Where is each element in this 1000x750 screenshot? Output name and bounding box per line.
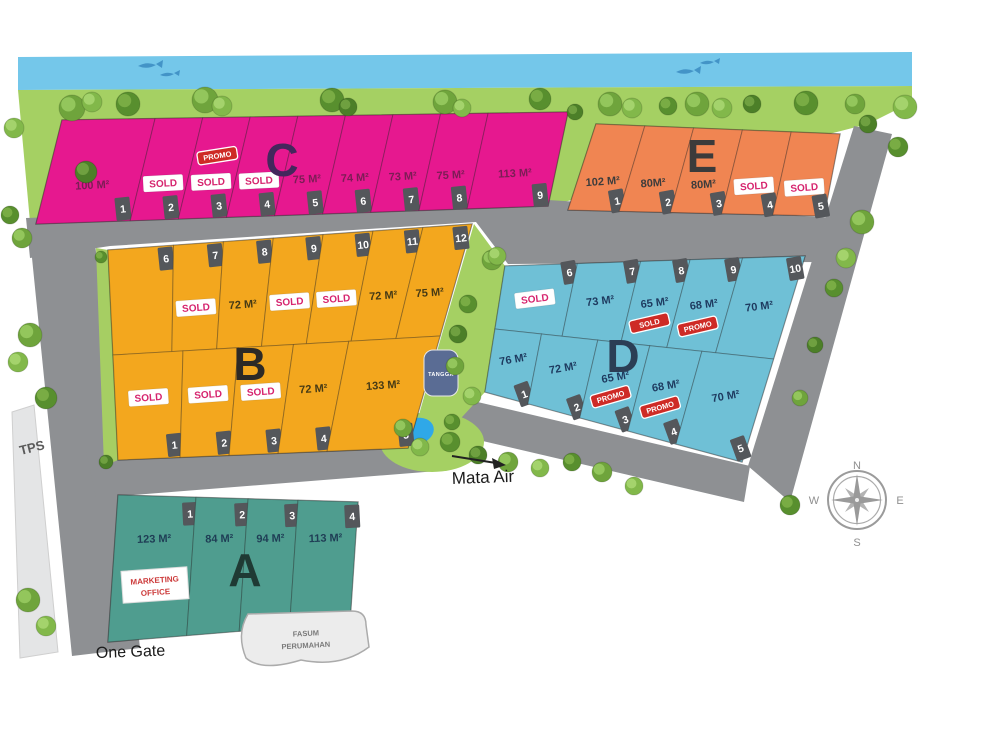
lot-number-tag: 7 <box>403 187 420 211</box>
svg-text:SOLD: SOLD <box>134 392 162 405</box>
tree <box>712 98 732 118</box>
tree <box>888 137 908 157</box>
sold-badge: SOLD <box>188 385 229 404</box>
sold-badge: SOLD <box>733 177 774 196</box>
svg-text:SOLD: SOLD <box>790 182 818 195</box>
svg-text:SOLD: SOLD <box>197 177 225 189</box>
tree <box>859 115 877 133</box>
svg-text:2: 2 <box>239 509 246 521</box>
tree <box>488 247 506 265</box>
sold-badge: SOLD <box>191 173 232 191</box>
tree <box>116 92 140 116</box>
lot-B-7: 7SOLD <box>172 242 224 352</box>
tree <box>444 414 460 430</box>
tree <box>339 98 357 116</box>
tree <box>446 357 464 375</box>
tree <box>75 161 97 183</box>
tree <box>807 337 823 353</box>
tree <box>625 477 643 495</box>
tree <box>563 453 581 471</box>
lot-number-tag: 4 <box>258 192 275 216</box>
fasum-label-1: FASUM <box>293 628 320 638</box>
compass-rose: N S W E <box>809 460 904 549</box>
site-plan-page: TPS 1100 M²2SOLD3SOLDPROMO4SOLD575 M²674… <box>0 0 1000 750</box>
lot-area-label: 73 M² <box>388 170 417 183</box>
svg-text:1: 1 <box>187 508 194 520</box>
tree <box>598 92 622 116</box>
block-C-letter: C <box>265 134 298 186</box>
tree <box>792 390 808 406</box>
lot-B-6: 6 <box>108 245 175 355</box>
tree <box>8 352 28 372</box>
svg-text:SOLD: SOLD <box>740 180 768 193</box>
tree <box>99 455 113 469</box>
svg-text:3: 3 <box>289 510 296 522</box>
tree <box>453 99 471 117</box>
fasum-area <box>241 611 369 666</box>
svg-text:10: 10 <box>357 239 370 252</box>
one-gate-label: One Gate <box>96 643 166 662</box>
tree <box>825 279 843 297</box>
block-E-letter: E <box>687 130 718 182</box>
lot-number-tag: 6 <box>355 189 372 213</box>
tree <box>531 459 549 477</box>
lot-B-2: 2SOLD <box>180 348 238 458</box>
lot-number-tag: 8 <box>451 185 468 209</box>
svg-text:SOLD: SOLD <box>275 296 303 309</box>
lot-number-tag: 9 <box>532 183 549 207</box>
lot-number-tag: 2 <box>162 195 179 219</box>
tree <box>780 495 800 515</box>
tree <box>794 91 818 115</box>
tree <box>59 95 85 121</box>
tree <box>463 387 481 405</box>
lot-area-label: 113 M² <box>309 532 343 545</box>
tree <box>411 438 429 456</box>
lot-number-tag: 4 <box>344 504 360 528</box>
lot-area-label: 113 M² <box>498 167 533 181</box>
svg-text:SOLD: SOLD <box>194 389 222 402</box>
river <box>18 52 912 90</box>
tree <box>82 92 102 112</box>
lot-area-label: 74 M² <box>341 172 370 185</box>
sold-badge: SOLD <box>175 298 216 317</box>
mata-air-label: Mata Air <box>451 467 514 488</box>
svg-text:SOLD: SOLD <box>149 178 177 190</box>
tree <box>36 616 56 636</box>
lot-area-label: 102 M² <box>585 175 620 189</box>
sold-badge: SOLD <box>128 388 169 407</box>
tree <box>12 228 32 248</box>
tree <box>529 88 551 110</box>
tree <box>18 323 42 347</box>
svg-text:SOLD: SOLD <box>322 293 350 306</box>
sold-badge: SOLD <box>784 178 825 197</box>
tree <box>449 325 467 343</box>
tree <box>4 118 24 138</box>
svg-text:SOLD: SOLD <box>182 302 210 315</box>
block-D-letter: D <box>606 330 639 382</box>
tree <box>850 210 874 234</box>
lot-number-tag: 3 <box>210 193 227 217</box>
lot-number-tag: 12 <box>452 226 469 250</box>
tree <box>440 432 460 452</box>
block-C: 1100 M²2SOLD3SOLDPROMO4SOLD575 M²674 M²7… <box>36 112 568 224</box>
tree <box>659 97 677 115</box>
lot-area-label: 133 M² <box>366 379 401 393</box>
tree <box>845 94 865 114</box>
tree <box>35 387 57 409</box>
lot-A-4: 4113 M² <box>290 500 361 627</box>
lot-area-label: 80M² <box>640 177 666 191</box>
tree <box>592 462 612 482</box>
tree <box>893 95 917 119</box>
tree <box>459 295 477 313</box>
tree <box>95 251 107 263</box>
lot-area-label: 75 M² <box>415 286 444 300</box>
svg-text:4: 4 <box>349 511 356 523</box>
marketing-office-badge: MARKETING OFFICE <box>121 567 189 604</box>
lot-area-label: 72 M² <box>299 382 328 396</box>
lot-area-label: 72 M² <box>228 298 257 312</box>
lot-area-label: 75 M² <box>436 169 465 182</box>
tree <box>836 248 856 268</box>
block-A-letter: A <box>228 544 261 596</box>
lot-B-1: 1SOLD <box>113 351 183 460</box>
svg-text:10: 10 <box>789 262 803 276</box>
svg-text:11: 11 <box>406 236 418 249</box>
tree <box>1 206 19 224</box>
lot-area-label: 123 M² <box>137 533 172 546</box>
sold-badge: SOLD <box>143 174 184 192</box>
lot-number-tag: 5 <box>307 190 324 214</box>
compass-w: W <box>809 495 820 507</box>
sold-badge: SOLD <box>316 289 357 308</box>
tree <box>16 588 40 612</box>
lot-number-tag: 6 <box>157 246 174 270</box>
tree <box>567 104 583 120</box>
sold-badge: SOLD <box>269 292 310 311</box>
compass-n: N <box>853 460 861 472</box>
tree <box>622 98 642 118</box>
tree <box>212 96 232 116</box>
tree <box>743 95 761 113</box>
lot-number-tag: 7 <box>207 243 224 267</box>
block-B-letter: B <box>233 338 266 390</box>
lot-area-label: 72 M² <box>369 289 398 303</box>
lot-number-tag: 1 <box>114 197 131 221</box>
block-E: 1102 M²280M²380M²4SOLD5SOLDE <box>568 124 840 219</box>
svg-text:12: 12 <box>455 232 468 245</box>
compass-s: S <box>853 537 860 549</box>
tree <box>394 419 412 437</box>
compass-e: E <box>896 495 903 507</box>
site-plan-map: TPS 1100 M²2SOLD3SOLDPROMO4SOLD575 M²674… <box>0 0 1000 750</box>
tree <box>685 92 709 116</box>
